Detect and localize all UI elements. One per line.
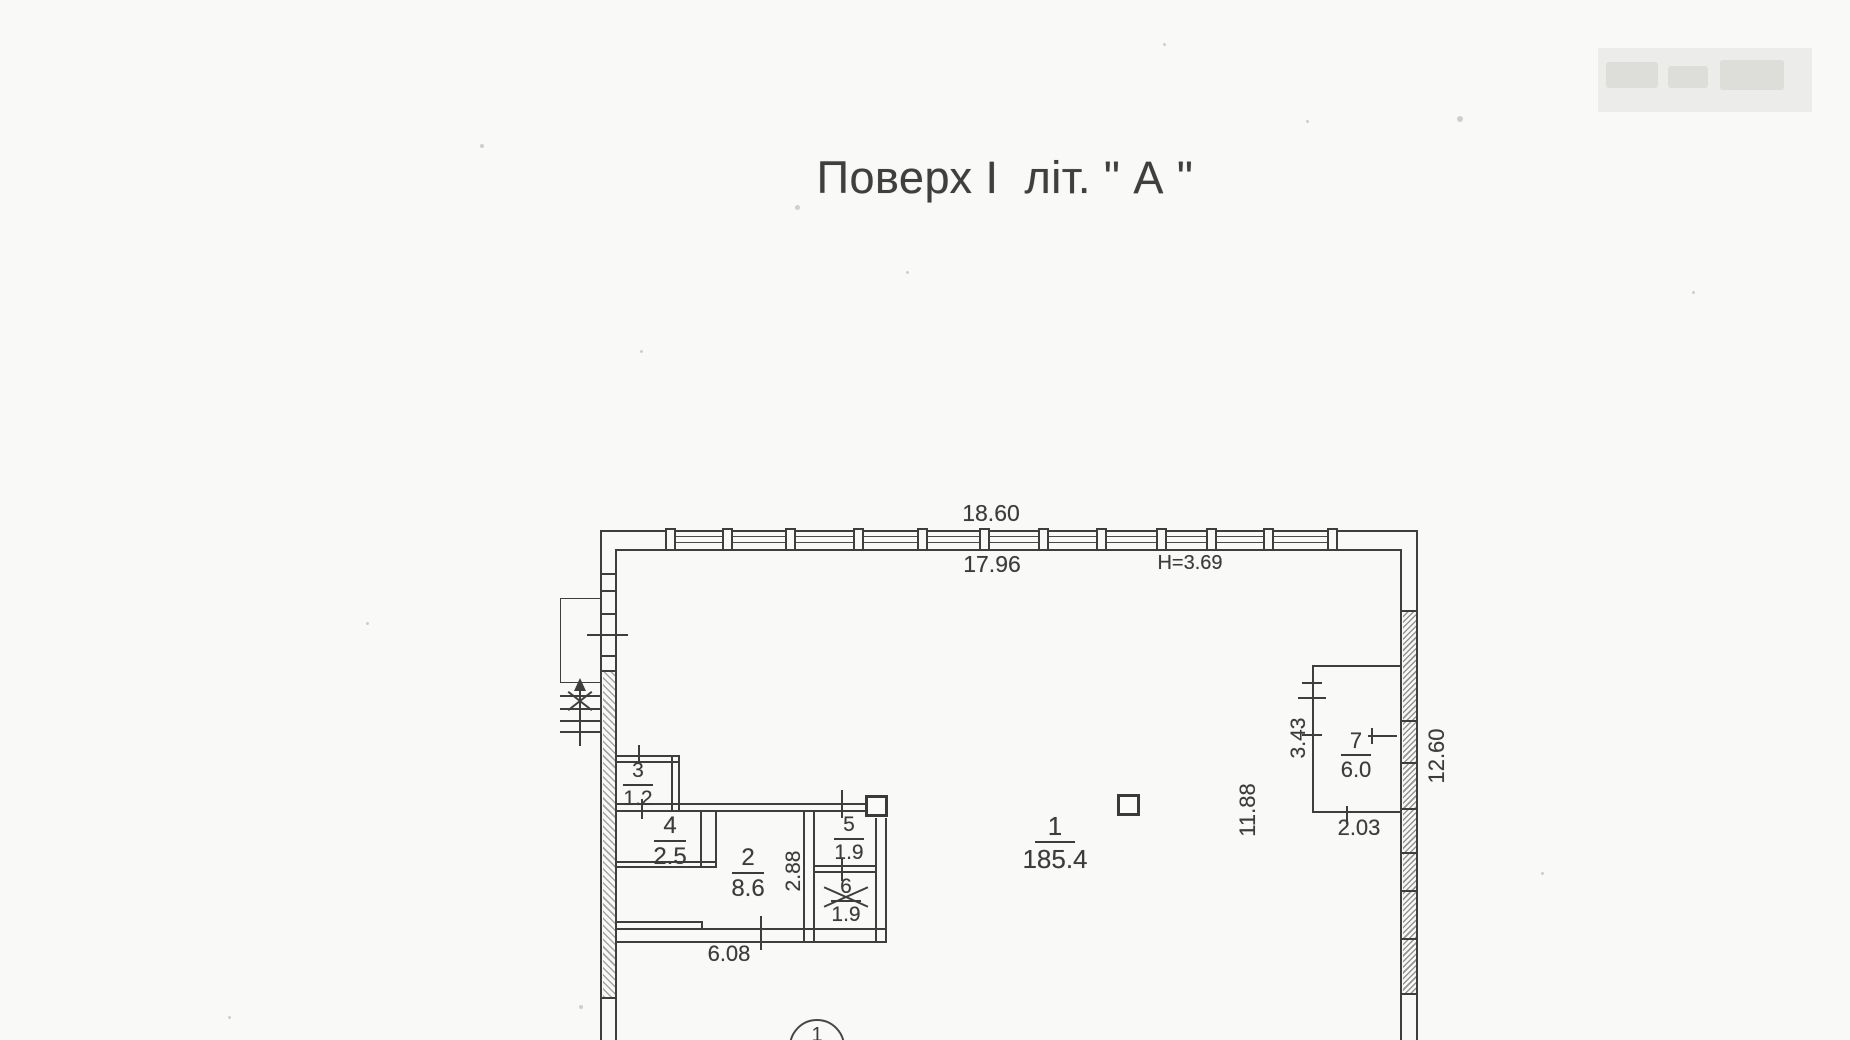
window-mullion <box>1038 528 1049 551</box>
right-wall-division <box>1400 890 1418 892</box>
dim-ceiling-height: H=3.69 <box>1148 552 1232 575</box>
room-area: 1.9 <box>813 842 885 865</box>
scan-speck <box>1163 43 1166 46</box>
room-area: 185.4 <box>1010 845 1100 873</box>
right-wall-division <box>1400 720 1418 722</box>
window-mullion <box>1263 528 1274 551</box>
scan-speck <box>1541 872 1544 875</box>
left-wall-division <box>600 670 617 672</box>
room-number: 4 <box>654 813 685 842</box>
window-mullion <box>917 528 928 551</box>
window-mullion <box>665 528 676 551</box>
axis-marker-number: 1 <box>811 1024 822 1040</box>
watermark-blob <box>1720 60 1784 90</box>
scan-speck <box>795 205 800 210</box>
room-area: 2.5 <box>634 844 706 870</box>
wall-rooms56-divider <box>815 865 875 873</box>
room-area: 6.0 <box>1320 758 1392 782</box>
scan-speck <box>228 1016 231 1019</box>
right-wall-division <box>1400 808 1418 810</box>
axis-marker-circle: 1 <box>789 1019 845 1040</box>
dim-top-outer: 18.60 <box>946 500 1036 527</box>
watermark-blob <box>1606 62 1658 88</box>
dimension-tick <box>587 634 628 636</box>
room-label-4: 4 2.5 <box>634 813 706 870</box>
left-wall-division <box>600 613 617 615</box>
window-mullion <box>1327 528 1338 551</box>
window-mullion <box>785 528 796 551</box>
window-mullion <box>1156 528 1167 551</box>
dimension-tick <box>1302 682 1322 684</box>
room-label-7: 7 6.0 <box>1320 729 1392 782</box>
window-mullion <box>853 528 864 551</box>
scanned-floor-plan-page: Поверх І літ. " А " <box>0 0 1850 1040</box>
dim-room7-width: 2.03 <box>1314 815 1404 841</box>
dim-right-wall-height: 12.60 <box>1424 716 1450 796</box>
watermark-blob <box>1668 66 1708 88</box>
dim-top-inner: 17.96 <box>947 551 1037 578</box>
window-mullion <box>722 528 733 551</box>
right-wall-division <box>1400 852 1418 854</box>
room-label-5: 5 1.9 <box>813 814 885 864</box>
dim-hall-depth: 11.88 <box>1235 770 1261 850</box>
room-number: 3 <box>623 760 653 786</box>
room-number: 7 <box>1341 729 1371 756</box>
left-wall-division <box>600 997 617 999</box>
dim-room2-depth: 2.88 <box>782 831 808 911</box>
stair-direction-arrow <box>560 678 602 752</box>
right-wall-division <box>1400 938 1418 940</box>
scan-speck <box>1306 120 1309 123</box>
room-area: 8.6 <box>713 876 783 902</box>
vent-cross-mark <box>822 882 870 912</box>
window-mullion <box>1096 528 1107 551</box>
room-number: 1 <box>1035 812 1075 843</box>
left-wall-division <box>600 573 617 575</box>
room-label-6: 6 1.9 <box>810 876 882 926</box>
page-title: Поверх І літ. " А " <box>655 152 1355 204</box>
room-area: 1.2 <box>607 788 669 811</box>
scan-speck <box>480 144 484 148</box>
faded-stamp-watermark <box>1598 48 1812 112</box>
scan-speck <box>366 622 369 625</box>
scan-speck <box>906 271 909 274</box>
room-label-2: 2 8.6 <box>713 845 783 902</box>
dim-bottom-left-width: 6.08 <box>684 941 774 967</box>
wall-right-outer-line <box>1416 530 1418 1040</box>
window-mullion <box>1206 528 1217 551</box>
room-number: 5 <box>834 814 864 840</box>
left-wall-division <box>600 655 617 657</box>
left-wall-division <box>600 590 617 592</box>
dim-room7-depth: 3.43 <box>1287 698 1313 778</box>
room-number: 2 <box>732 845 763 874</box>
scan-speck <box>1457 116 1463 122</box>
right-wall-division <box>1400 993 1418 995</box>
column-square-b <box>1117 794 1140 816</box>
window-mullion <box>979 528 990 551</box>
scan-speck <box>640 350 643 353</box>
room-label-1: 1 185.4 <box>1010 812 1100 873</box>
right-wall-division <box>1400 762 1418 764</box>
left-wall-hatch <box>603 670 615 997</box>
scan-speck <box>1692 291 1695 294</box>
window-band-top <box>670 536 1337 543</box>
right-wall-division <box>1400 610 1418 612</box>
scan-speck <box>579 1005 583 1009</box>
porch-outline <box>560 598 601 683</box>
stair-arrow-shaft <box>579 687 581 746</box>
room-label-3: 3 1.2 <box>607 760 669 810</box>
